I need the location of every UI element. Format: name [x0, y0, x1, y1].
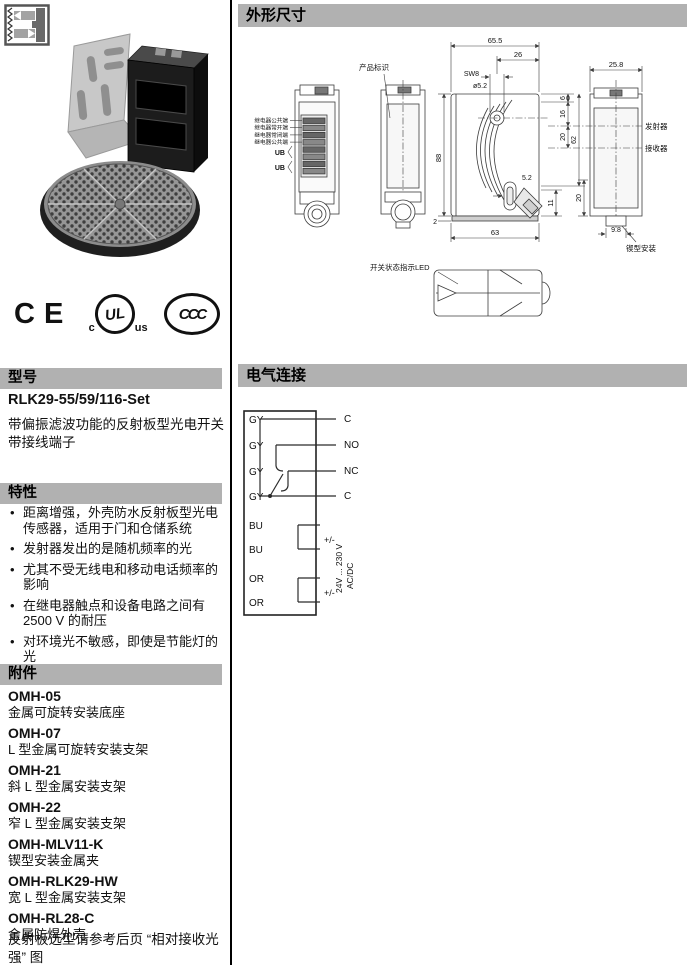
right-side-view: 发射器 接收器 25.8 20 9.8 锲型安装	[548, 60, 668, 253]
terminal-gy4: GY	[249, 492, 264, 503]
feature-item: 距离增强，外壳防水反射板型光电传感器，适用于门和仓储系统	[8, 505, 225, 536]
accessories-list: OMH-05 金属可旋转安装底座 OMH-07 L 型金属可旋转安装支架 OMH…	[8, 688, 224, 947]
model-description-line2: 带接线端子	[8, 434, 224, 452]
terminal-or2: OR	[249, 598, 264, 609]
terminal-label-relay-com1: 继电器公共端	[254, 117, 288, 125]
accessory-code: OMH-MLV11-K	[8, 836, 224, 853]
terminal-gy1: GY	[249, 415, 264, 426]
terminal-bu1: BU	[249, 521, 263, 532]
dim-65-5: 65.5	[488, 36, 503, 45]
product-photo	[10, 28, 225, 263]
accessory-item: OMH-05 金属可旋转安装底座	[8, 688, 224, 721]
accessory-item: OMH-RLK29-HW 宽 L 型金属安装支架	[8, 873, 224, 906]
dim-dia52: ø5.2	[473, 83, 487, 90]
accessory-desc: L 型金属可旋转安装支架	[8, 742, 224, 758]
terminal-label-ub2: UB	[275, 165, 285, 172]
ccc-letters: CCC	[179, 306, 206, 323]
label-receiver: 接收器	[645, 143, 668, 153]
terminal-label-relay-com2: 继电器公共端	[254, 138, 288, 146]
datasheet-page: CE c UL us CCC 型号 RLK29-55/59/116-Set 带偏…	[0, 0, 687, 965]
supply-polarity-1: +/-	[324, 535, 335, 545]
output-nc: NC	[344, 466, 358, 477]
ul-letters: UL	[104, 304, 126, 324]
section-header-accessories: 附件	[0, 664, 222, 685]
accessory-code: OMH-22	[8, 799, 224, 816]
sensor-photo	[128, 46, 208, 172]
dim-16: 16	[560, 110, 567, 118]
accessory-item: OMH-21 斜 L 型金属安装支架	[8, 762, 224, 795]
top-view-led: 开关状态指示LED	[370, 262, 550, 316]
dim-25-8: 25.8	[609, 60, 624, 69]
ce-mark: CE	[14, 298, 72, 331]
voltage-range-label: 24V ... 230 V	[334, 544, 344, 593]
voltage-type-label: AC/DC	[345, 563, 355, 589]
accessory-code: OMH-07	[8, 725, 224, 742]
ccc-mark: CCC	[164, 293, 220, 335]
accessory-code: OMH-RLK29-HW	[8, 873, 224, 890]
section-header-wiring: 电气连接	[238, 364, 687, 387]
accessory-desc: 锲型安装金属夹	[8, 853, 224, 869]
dim-88: 88	[434, 154, 443, 162]
dim-sw8: SW8	[464, 71, 479, 78]
terminal-bu2: BU	[249, 545, 263, 556]
column-divider	[230, 0, 232, 965]
dim-20b: 20	[576, 194, 583, 202]
accessory-code: OMH-RL28-C	[8, 910, 224, 927]
terminal-label-ub1: UB	[275, 150, 285, 157]
terminal-or1: OR	[249, 574, 264, 585]
ul-us-label: us	[135, 322, 148, 334]
feature-item: 在继电器触点和设备电路之间有2500 V 的耐压	[8, 598, 225, 629]
label-emitter: 发射器	[645, 121, 668, 131]
model-name: RLK29-55/59/116-Set	[8, 392, 150, 408]
dim-2: 2	[433, 219, 437, 226]
section-header-model: 型号	[0, 368, 222, 389]
supply-circuit: +/- +/- 24V ... 230 V AC/DC	[298, 525, 355, 602]
output-c1: C	[344, 414, 351, 425]
section-header-features: 特性	[0, 483, 222, 504]
feature-item: 对环境光不敏感，即使是节能灯的光	[8, 634, 225, 665]
terminal-label-relay-no: 继电器常开端	[254, 124, 288, 132]
ul-c-label: c	[89, 322, 95, 334]
terminal-gy3: GY	[249, 467, 264, 478]
dimension-drawing: 继电器公共端 继电器常开端 继电器常闭端 继电器公共端 UB UB 产品标识	[238, 30, 687, 360]
reflector-selection-note: 反射板选型请参考后页 “相对接收光强” 图	[8, 931, 224, 965]
accessory-item: OMH-MLV11-K 锲型安装金属夹	[8, 836, 224, 869]
feature-item: 发射器发出的是随机频率的光	[8, 541, 225, 557]
terminal-labels: GY GY GY GY BU BU OR OR	[249, 415, 264, 609]
dim-62: 62	[571, 136, 578, 144]
terminal-label-relay-nc: 继电器常闭端	[254, 131, 288, 139]
feature-item: 尤其不受无线电和移动电话频率的影响	[8, 562, 225, 593]
label-switch-led: 开关状态指示LED	[370, 262, 430, 272]
dim-6: 6	[560, 96, 567, 100]
front-view-plain: 产品标识	[359, 62, 425, 230]
terminal-gy2: GY	[249, 441, 264, 452]
relay-contact-circuit	[260, 419, 336, 498]
accessory-desc: 窄 L 型金属安装支架	[8, 816, 224, 832]
wiring-diagram: GY GY GY GY BU BU OR OR C NO NC C	[240, 403, 480, 643]
output-labels: C NO NC C	[344, 414, 359, 502]
dim-11: 11	[548, 199, 555, 206]
section-header-dimensions: 外形尺寸	[238, 4, 687, 27]
dim-5-2-slot: 5.2	[522, 175, 532, 182]
accessory-code: OMH-05	[8, 688, 224, 705]
label-product-id: 产品标识	[359, 62, 389, 72]
side-view-large: SW8 ø5.2 65.5 26 5.2 63	[451, 36, 548, 242]
accessory-code: OMH-21	[8, 762, 224, 779]
ul-circle: UL	[92, 291, 137, 336]
dim-9-8: 9.8	[611, 227, 621, 234]
dim-20: 20	[560, 133, 567, 141]
output-c2: C	[344, 491, 351, 502]
features-list: 距离增强，外壳防水反射板型光电传感器，适用于门和仓储系统 发射器发出的是随机频率…	[8, 505, 225, 690]
accessory-desc: 斜 L 型金属安装支架	[8, 779, 224, 795]
output-no: NO	[344, 440, 359, 451]
dim-88-2: 88 2	[433, 94, 451, 226]
accessory-desc: 宽 L 型金属安装支架	[8, 890, 224, 906]
accessory-desc: 金属可旋转安装底座	[8, 705, 224, 721]
reflector-photo	[40, 161, 200, 257]
front-view-terminals: 继电器公共端 继电器常开端 继电器常闭端 继电器公共端 UB UB	[254, 85, 339, 227]
dim-26: 26	[514, 50, 522, 59]
ul-mark: c UL us	[89, 294, 148, 334]
dim-63: 63	[491, 228, 499, 237]
accessory-item: OMH-22 窄 L 型金属安装支架	[8, 799, 224, 832]
model-description: 带偏振滤波功能的反射板型光电开关 带接线端子	[8, 416, 224, 452]
accessory-item: OMH-07 L 型金属可旋转安装支架	[8, 725, 224, 758]
label-wedge-mount: 锲型安装	[626, 243, 656, 253]
certification-marks: CE c UL us CCC	[14, 290, 220, 338]
model-description-line1: 带偏振滤波功能的反射板型光电开关	[8, 416, 224, 434]
